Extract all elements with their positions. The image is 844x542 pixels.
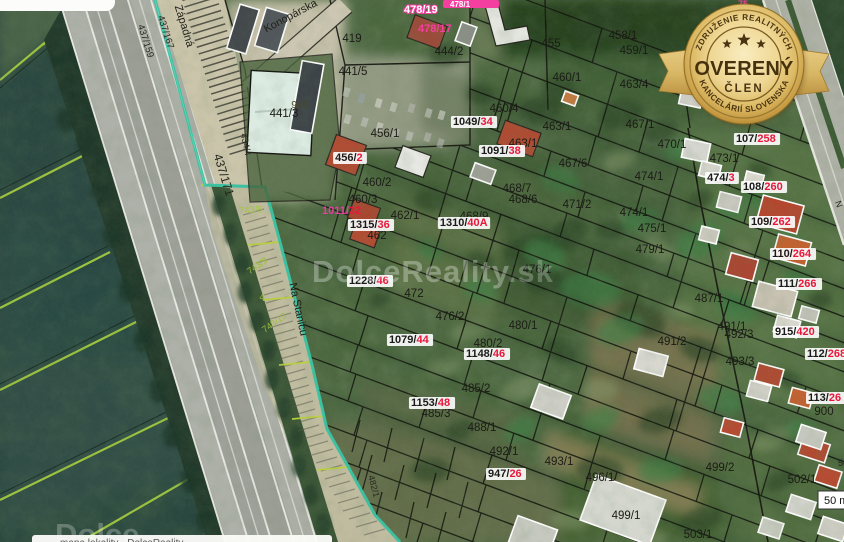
svg-text:mapa lokality · DolceReality: mapa lokality · DolceReality bbox=[60, 538, 183, 542]
svg-text:499/1: 499/1 bbox=[612, 510, 641, 522]
svg-text:478/17: 478/17 bbox=[418, 23, 452, 35]
svg-text:485/3: 485/3 bbox=[422, 408, 451, 420]
svg-text:456/2: 456/2 bbox=[335, 152, 363, 164]
svg-text:499/2: 499/2 bbox=[706, 462, 735, 474]
svg-text:460/2: 460/2 bbox=[363, 177, 392, 189]
svg-text:475/1: 475/1 bbox=[638, 223, 667, 235]
svg-text:1148/46: 1148/46 bbox=[466, 348, 505, 360]
svg-text:111/266: 111/266 bbox=[778, 278, 817, 290]
svg-text:113/26: 113/26 bbox=[808, 392, 841, 404]
svg-text:1079/44: 1079/44 bbox=[389, 334, 430, 346]
svg-text:462: 462 bbox=[367, 230, 386, 242]
svg-text:479/1: 479/1 bbox=[636, 244, 665, 256]
svg-text:485/2: 485/2 bbox=[462, 383, 491, 395]
svg-text:441/5: 441/5 bbox=[339, 66, 368, 78]
svg-text:1049/34: 1049/34 bbox=[453, 116, 494, 128]
svg-text:492/3: 492/3 bbox=[725, 329, 754, 341]
svg-text:459/1: 459/1 bbox=[620, 45, 649, 57]
svg-text:462/1: 462/1 bbox=[391, 210, 420, 222]
svg-text:109/262: 109/262 bbox=[751, 216, 791, 228]
svg-text:108/260: 108/260 bbox=[743, 181, 783, 193]
svg-text:1091/38: 1091/38 bbox=[481, 145, 521, 157]
svg-text:947/26: 947/26 bbox=[488, 468, 522, 480]
svg-text:468/7: 468/7 bbox=[503, 183, 532, 195]
svg-text:1315/36: 1315/36 bbox=[350, 219, 390, 231]
svg-text:480/1: 480/1 bbox=[509, 320, 538, 332]
svg-text:493/3: 493/3 bbox=[726, 356, 755, 368]
svg-text:476/2: 476/2 bbox=[436, 311, 465, 323]
svg-text:ČLEN: ČLEN bbox=[724, 82, 763, 95]
svg-text:471/2: 471/2 bbox=[563, 199, 592, 211]
svg-text:743/5: 743/5 bbox=[239, 204, 263, 216]
svg-text:473/1: 473/1 bbox=[710, 153, 739, 165]
svg-text:496/1: 496/1 bbox=[586, 472, 615, 484]
svg-text:472: 472 bbox=[404, 288, 423, 300]
svg-text:1153/48: 1153/48 bbox=[411, 397, 450, 409]
svg-text:DolceReality.sk: DolceReality.sk bbox=[312, 254, 554, 289]
svg-text:474/1: 474/1 bbox=[620, 207, 649, 219]
svg-text:467/1: 467/1 bbox=[626, 119, 655, 131]
svg-text:478/19: 478/19 bbox=[404, 4, 438, 16]
svg-text:463/1: 463/1 bbox=[543, 121, 572, 133]
svg-text:1310/40A: 1310/40A bbox=[440, 217, 488, 229]
svg-text:487/1: 487/1 bbox=[695, 293, 724, 305]
svg-text:460/4: 460/4 bbox=[490, 103, 519, 115]
svg-text:503/1: 503/1 bbox=[684, 529, 713, 541]
svg-text:107/258: 107/258 bbox=[736, 133, 776, 145]
svg-text:900: 900 bbox=[814, 406, 833, 418]
svg-text:110/264: 110/264 bbox=[772, 248, 812, 260]
svg-text:470/1: 470/1 bbox=[658, 139, 687, 151]
svg-text:492/1: 492/1 bbox=[490, 446, 519, 458]
svg-text:463/4: 463/4 bbox=[620, 79, 649, 91]
svg-text:460/1: 460/1 bbox=[553, 72, 582, 84]
svg-text:419: 419 bbox=[342, 33, 361, 45]
svg-text:456/1: 456/1 bbox=[371, 128, 400, 140]
svg-text:474/3: 474/3 bbox=[707, 172, 735, 184]
svg-text:915/420: 915/420 bbox=[775, 326, 815, 338]
svg-text:OVERENÝ: OVERENÝ bbox=[694, 56, 794, 80]
svg-text:50 m: 50 m bbox=[824, 495, 844, 507]
svg-text:478/1: 478/1 bbox=[450, 0, 471, 9]
svg-text:50: 50 bbox=[838, 458, 844, 468]
svg-text:940: 940 bbox=[291, 99, 309, 111]
svg-text:488/1: 488/1 bbox=[468, 422, 497, 434]
svg-text:458/1: 458/1 bbox=[609, 30, 638, 42]
svg-text:467/6: 467/6 bbox=[559, 158, 588, 170]
svg-text:474/1: 474/1 bbox=[635, 171, 664, 183]
svg-text:1011/32: 1011/32 bbox=[322, 205, 361, 217]
svg-text:468/6: 468/6 bbox=[509, 194, 538, 206]
svg-text:455: 455 bbox=[541, 38, 560, 50]
svg-text:502/1: 502/1 bbox=[788, 474, 817, 486]
svg-text:493/1: 493/1 bbox=[545, 456, 574, 468]
svg-text:4: 4 bbox=[259, 292, 264, 302]
svg-text:112/268: 112/268 bbox=[807, 348, 844, 360]
svg-text:444/2: 444/2 bbox=[435, 46, 464, 58]
svg-text:491/2: 491/2 bbox=[658, 336, 687, 348]
